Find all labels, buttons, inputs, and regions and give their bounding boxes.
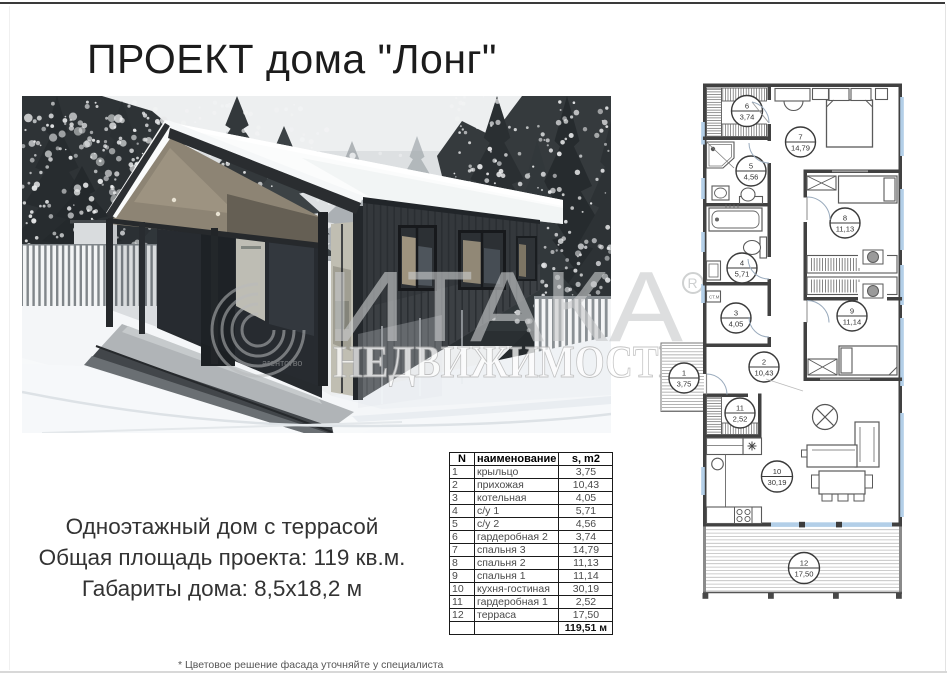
svg-text:НЕДВИЖИМОСТЬ: НЕДВИЖИМОСТЬ <box>333 336 684 387</box>
svg-text:6: 6 <box>745 102 749 111</box>
svg-text:7: 7 <box>798 133 802 142</box>
svg-text:9: 9 <box>850 307 854 316</box>
svg-text:3,75: 3,75 <box>677 380 692 389</box>
svg-text:5,71: 5,71 <box>735 270 750 279</box>
svg-text:8: 8 <box>843 214 847 223</box>
svg-text:3: 3 <box>734 309 738 318</box>
svg-text:2,52: 2,52 <box>733 415 748 424</box>
svg-text:12: 12 <box>800 559 808 568</box>
svg-text:агентство: агентство <box>262 358 302 368</box>
svg-text:1: 1 <box>682 369 686 378</box>
svg-text:11: 11 <box>736 404 744 413</box>
svg-text:17,50: 17,50 <box>794 570 813 579</box>
svg-text:3,74: 3,74 <box>740 113 755 122</box>
svg-text:10: 10 <box>773 467 781 476</box>
svg-text:11,13: 11,13 <box>836 225 854 234</box>
svg-text:4: 4 <box>740 259 744 268</box>
svg-text:11,14: 11,14 <box>843 318 861 327</box>
svg-text:14,79: 14,79 <box>791 144 810 153</box>
svg-text:СТ.М: СТ.М <box>709 295 720 300</box>
svg-text:4,05: 4,05 <box>729 320 744 329</box>
svg-text:30,19: 30,19 <box>767 478 786 487</box>
svg-text:4,56: 4,56 <box>744 173 759 182</box>
svg-text:5: 5 <box>749 162 753 171</box>
svg-text:10,43: 10,43 <box>754 369 773 378</box>
svg-text:2: 2 <box>762 358 766 367</box>
